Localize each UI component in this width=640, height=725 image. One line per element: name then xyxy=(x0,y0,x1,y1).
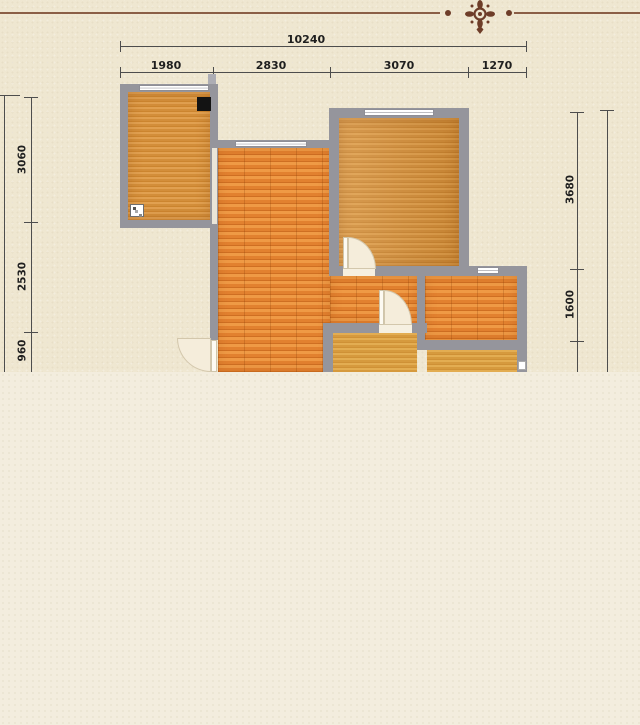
window xyxy=(235,141,307,147)
wall xyxy=(210,228,218,340)
living-hall-floor xyxy=(218,148,330,372)
dim-label-left: 3060 xyxy=(17,125,30,195)
window xyxy=(364,109,434,116)
dim-tick xyxy=(570,112,584,113)
room-right-small-floor xyxy=(425,276,517,340)
dim-line xyxy=(120,72,527,73)
utility-symbol xyxy=(130,204,144,217)
blank-lower-area xyxy=(0,372,640,725)
wall-opening-band xyxy=(212,148,217,224)
dim-tick xyxy=(600,110,614,111)
room-bottom-right-floor xyxy=(427,350,517,372)
floorplan-image: 10240 1980 2830 3070 1270 3060 2530 960 … xyxy=(0,0,640,372)
wall xyxy=(120,84,128,228)
dim-tick xyxy=(0,95,20,96)
entry-door-leaf xyxy=(211,340,217,372)
dim-label-left: 2530 xyxy=(17,242,30,312)
dim-label-right: 1600 xyxy=(565,270,578,340)
dim-label-segment: 2830 xyxy=(241,59,301,72)
dim-line xyxy=(31,97,32,372)
dim-line xyxy=(120,46,527,47)
dim-label-total-width: 10240 xyxy=(266,33,346,46)
window xyxy=(139,85,209,91)
divider-dot-left xyxy=(445,10,451,16)
wall xyxy=(412,323,427,333)
room-top-left-floor xyxy=(128,92,210,220)
dim-label-right: 3680 xyxy=(565,155,578,225)
wall xyxy=(417,340,527,350)
wall xyxy=(517,266,527,372)
window xyxy=(477,267,499,274)
dim-label-segment: 3070 xyxy=(369,59,429,72)
wall-notch xyxy=(518,361,526,370)
dim-tick xyxy=(24,97,38,98)
floral-ornament-icon xyxy=(454,0,506,34)
dim-label-left: 960 xyxy=(17,316,30,373)
dim-tick xyxy=(120,41,121,52)
room-bottom-center-floor xyxy=(333,333,417,372)
dim-tick xyxy=(570,341,584,342)
dim-tick xyxy=(24,222,38,223)
divider-dot-right xyxy=(506,10,512,16)
wall xyxy=(333,323,379,333)
dim-line-outer xyxy=(4,95,5,372)
wall xyxy=(323,323,333,372)
wall xyxy=(375,266,527,276)
dim-tick xyxy=(526,41,527,52)
wall xyxy=(329,108,339,276)
wall xyxy=(120,220,218,228)
column-marker xyxy=(197,97,211,111)
divider-rule-left xyxy=(0,12,440,14)
entry-door-swing xyxy=(177,338,211,372)
dim-label-segment: 1270 xyxy=(467,59,527,72)
wall xyxy=(329,266,343,276)
dim-tick xyxy=(330,67,331,78)
dim-line-outer xyxy=(607,110,608,372)
divider-rule-right xyxy=(514,12,640,14)
wall xyxy=(459,108,469,276)
dim-label-segment: 1980 xyxy=(136,59,196,72)
dim-tick xyxy=(120,67,121,78)
